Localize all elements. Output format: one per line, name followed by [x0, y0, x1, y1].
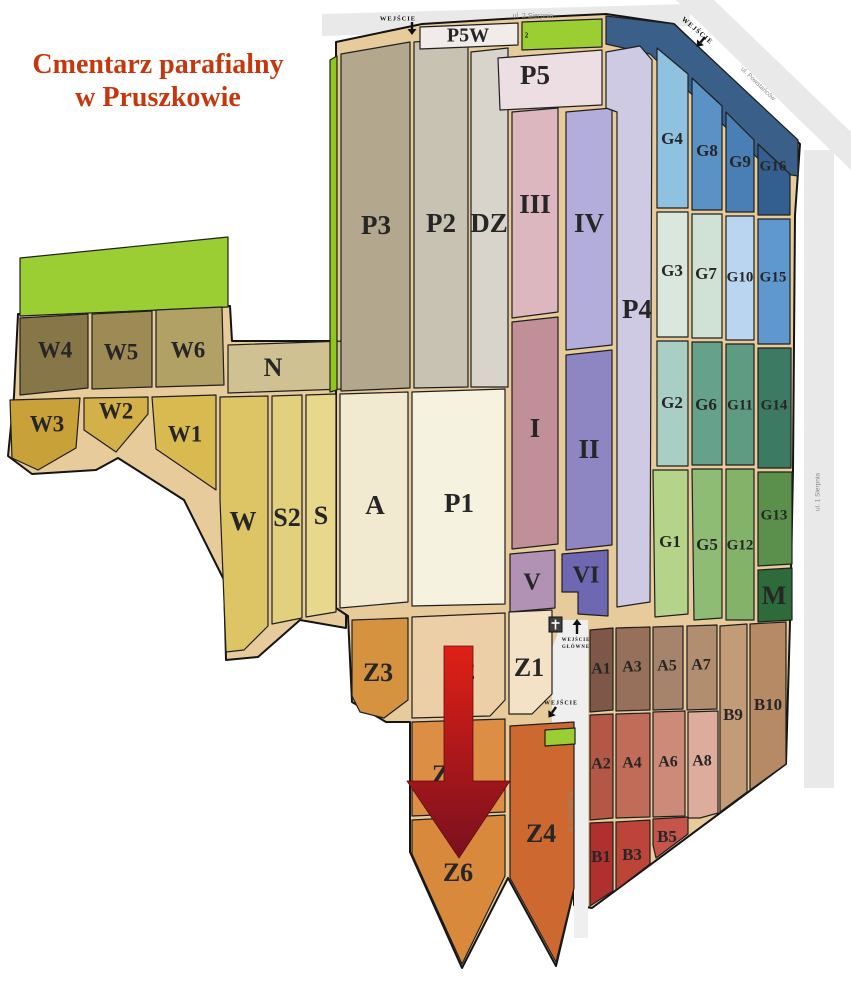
section-label-G11: G11	[727, 397, 753, 413]
cemetery-map: W4W5W6NW3W2W1WS2SP3P2DZP5WP5IIIIIVIIP4VV…	[0, 0, 851, 982]
section-label-IV: IV	[574, 208, 605, 238]
section-label-Z1: Z1	[514, 653, 544, 682]
section-label-G1: G1	[659, 532, 681, 551]
section-label-S: S	[314, 501, 328, 530]
section-label-A6: A6	[658, 754, 678, 771]
section-label-W4: W4	[38, 337, 73, 362]
section-label-P2: P2	[426, 208, 456, 238]
section-label-A8: A8	[692, 753, 712, 770]
section-label-W3: W3	[30, 411, 65, 436]
section-label-G14: G14	[761, 397, 788, 413]
entrance-label-main-gate-l1: WEJŚCIE	[562, 637, 591, 643]
entrance-label-main-gate-l2: GŁÓWNE	[562, 644, 590, 650]
section-label-P3: P3	[361, 210, 391, 240]
section-label-G2: G2	[661, 393, 683, 412]
section-label-G8: G8	[696, 141, 718, 160]
section-label-Z6: Z6	[443, 858, 473, 887]
section-label-S2: S2	[273, 503, 300, 532]
section-label-Z3: Z3	[363, 658, 393, 687]
street-label-1-sierpnia: ul. 1 Sierpnia	[815, 473, 822, 511]
section-label-A4: A4	[622, 755, 642, 772]
section-label-A3: A3	[622, 659, 642, 676]
section-label-W5: W5	[104, 339, 139, 364]
section-label-B10: B10	[754, 695, 782, 714]
section-P5	[498, 50, 602, 110]
section-green-west	[20, 237, 228, 316]
section-green-top	[522, 19, 602, 50]
section-label-G5: G5	[696, 535, 718, 554]
street-label-cmentarna: ul. Cmentarna	[568, 791, 575, 832]
section-label-M: M	[762, 581, 787, 610]
section-label-N: N	[264, 353, 283, 382]
section-label-G16: G16	[760, 158, 787, 174]
section-label-W6: W6	[171, 337, 206, 362]
section-label-G6: G6	[695, 395, 717, 414]
section-label-G4: G4	[661, 129, 683, 148]
street-label-2-sierpnia: ul. 2 Sierpnia	[513, 13, 554, 20]
section-label-II: II	[578, 434, 599, 464]
section-label-P1: P1	[444, 488, 474, 518]
section-label-G12: G12	[727, 537, 754, 553]
section-label-I: I	[530, 413, 541, 443]
section-label-W2: W2	[99, 398, 134, 423]
section-label-B1: B1	[591, 847, 611, 866]
section-label-P5: P5	[520, 60, 550, 90]
section-label-A: A	[365, 490, 385, 520]
section-label-DZ: DZ	[470, 208, 508, 238]
section-label-B5: B5	[657, 827, 677, 846]
section-label-A1: A1	[591, 661, 611, 678]
section-label-G13: G13	[761, 507, 788, 523]
section-label-G15: G15	[760, 269, 787, 285]
section-label-W: W	[230, 506, 257, 536]
section-label-A2: A2	[591, 756, 611, 773]
section-label-G9: G9	[729, 152, 751, 171]
cemetery-map-page: Cmentarz parafialny w Pruszkowie W4W5W6N…	[0, 0, 851, 982]
section-label-III: III	[519, 189, 551, 219]
section-label-W1: W1	[168, 421, 203, 446]
section-green-gate	[545, 728, 575, 746]
section-label-V: V	[523, 570, 541, 596]
section-N	[228, 341, 344, 393]
entrance-label-south-gate: WEJŚCIE	[544, 698, 578, 706]
road-1-sierpnia	[804, 150, 834, 788]
section-label-A5: A5	[657, 658, 677, 675]
section-label-P4: P4	[622, 294, 652, 324]
marker-2: 2	[525, 32, 530, 40]
section-label-G10: G10	[727, 269, 754, 285]
section-label-B3: B3	[622, 845, 642, 864]
section-label-VI: VI	[573, 563, 600, 589]
section-green-p3	[330, 56, 337, 392]
section-label-B9: B9	[723, 705, 743, 724]
entrance-label-north-gate: WEJŚCIE	[380, 14, 416, 22]
section-label-P5W: P5W	[447, 25, 489, 47]
section-label-A7: A7	[691, 657, 711, 674]
section-label-Z4: Z4	[526, 819, 556, 848]
section-label-G3: G3	[661, 261, 683, 280]
section-label-G7: G7	[695, 264, 717, 283]
